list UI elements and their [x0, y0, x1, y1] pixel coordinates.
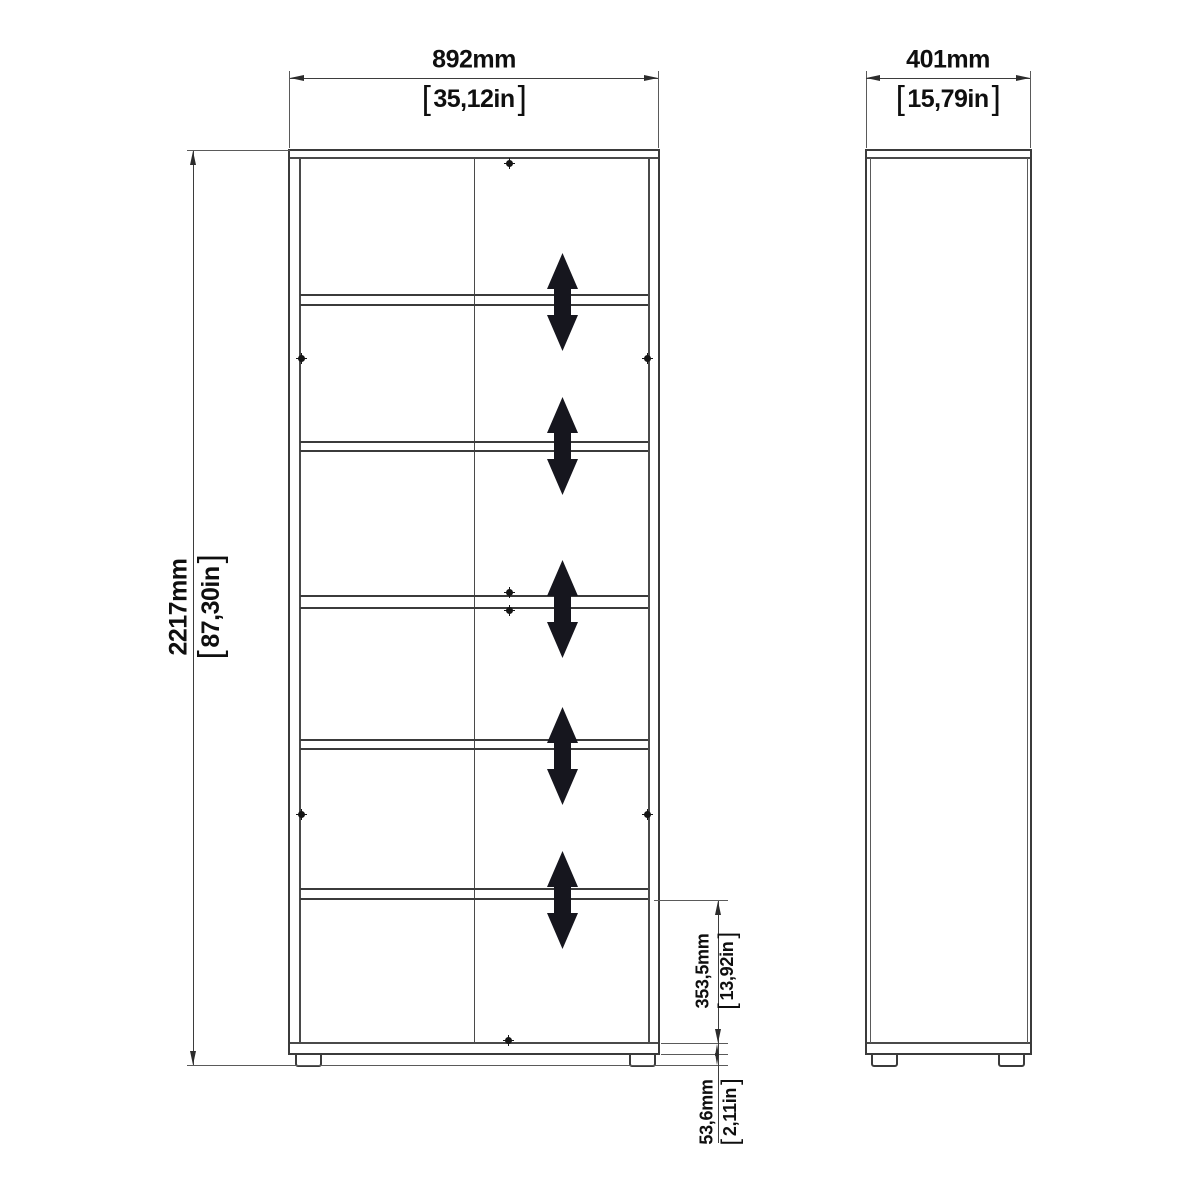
bottom-compartment-label-mm: 353,5mm: [693, 934, 714, 1009]
double-vertical-arrow-icon: [547, 707, 578, 805]
side-view-outline: [865, 149, 1032, 1055]
screw-dot-icon: [298, 811, 305, 818]
screw-dot-icon: [644, 355, 651, 362]
double-vertical-arrow-icon: [547, 253, 578, 351]
width-ext-line-left: [289, 71, 290, 148]
dim-arrowhead: [1016, 75, 1030, 81]
total-height-label-in: [87,30in]: [189, 552, 227, 663]
side-bottom-panel-line: [867, 1042, 1030, 1044]
dim-arrowhead: [644, 75, 658, 81]
dim-arrowhead: [190, 1051, 196, 1065]
dim-arrowhead: [715, 901, 721, 915]
screw-dot-icon: [644, 811, 651, 818]
side-right-foot: [998, 1053, 1025, 1067]
dim-arrowhead: [715, 1053, 719, 1065]
dim-arrowhead: [866, 75, 880, 81]
dim-arrowhead: [715, 1029, 721, 1043]
front-width-label-mm: 892mm: [432, 46, 516, 75]
shelf-2: [300, 441, 648, 452]
floor-line: [187, 1065, 728, 1066]
shelf-4: [300, 739, 648, 750]
front-right-panel-line: [648, 158, 650, 1043]
bottom-compartment-label-in: [13,92in]: [712, 929, 740, 1013]
side-top-panel-line: [867, 157, 1030, 159]
screw-dot-icon: [298, 355, 305, 362]
double-vertical-arrow-icon: [547, 851, 578, 949]
plinth-label-in: [2,11in]: [715, 1076, 743, 1149]
depth-ext-line-left: [866, 71, 867, 148]
double-vertical-arrow-icon: [547, 397, 578, 495]
shelf-5: [300, 888, 648, 900]
screw-dot-icon: [505, 1037, 512, 1044]
side-depth-label-mm: 401mm: [906, 46, 990, 75]
side-back-edge-line: [1027, 158, 1028, 1043]
shelf-1: [300, 294, 648, 306]
height-ext-line-top: [187, 150, 290, 151]
depth-ext-line-right: [1030, 71, 1031, 148]
screw-dot-icon: [506, 589, 513, 596]
side-front-edge-line: [870, 158, 871, 1043]
screw-dot-icon: [506, 607, 513, 614]
side-depth-label-in: [15,79in]: [893, 77, 1004, 115]
double-vertical-arrow-icon: [547, 560, 578, 658]
side-left-foot: [871, 1053, 898, 1067]
shelf-3-fixed: [300, 595, 648, 609]
dim-arrowhead: [290, 75, 304, 81]
screw-dot-icon: [506, 160, 513, 167]
width-ext-line-right: [658, 71, 659, 148]
dimension-diagram: 892mm [35,12in] 401mm [15,79in] 2217mm […: [0, 0, 1200, 1200]
dim-arrowhead: [190, 151, 196, 165]
front-width-label-in: [35,12in]: [419, 77, 530, 115]
